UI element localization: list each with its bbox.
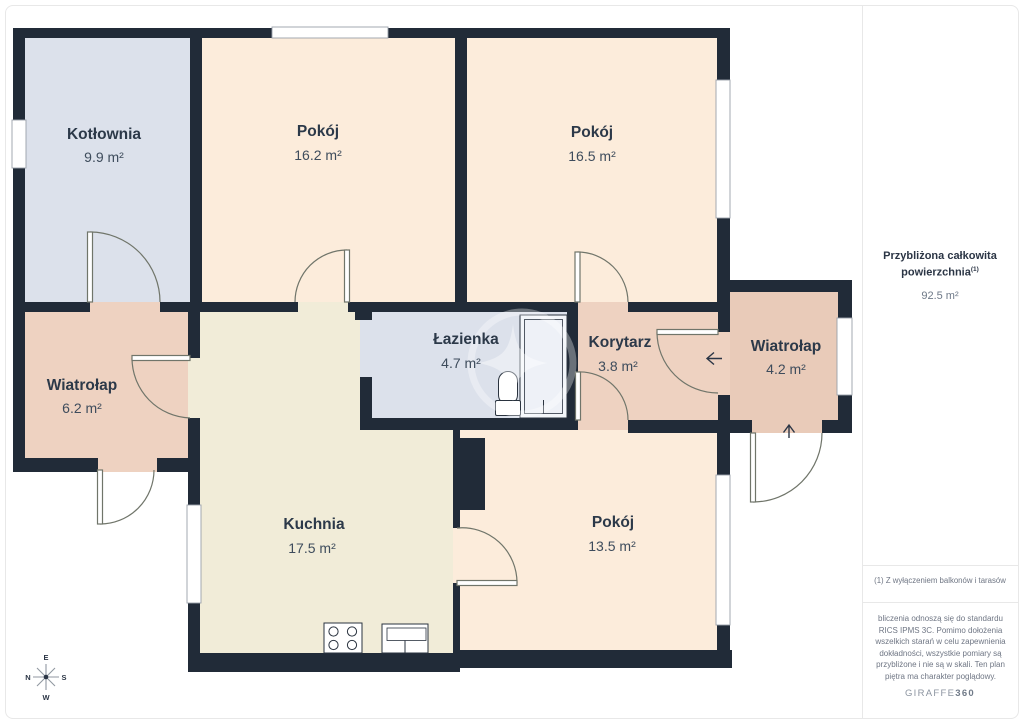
wall-pokoj1-pokoj2 <box>455 38 467 302</box>
room-area-wiatrolap2: 4.2 m² <box>766 361 806 377</box>
wall-lazienka-nw-stub <box>355 302 372 320</box>
room-area-lazienka: 4.7 m² <box>441 355 481 371</box>
total-area-title-line1: Przybliżona całkowita <box>883 250 997 262</box>
room-area-pokoj2: 16.5 m² <box>568 148 616 164</box>
door-leaf <box>345 250 350 302</box>
room-kotlownia-floor <box>25 38 190 302</box>
wall-wiatrolap2-east-a <box>838 280 852 318</box>
wall-wiatrolap1-south-a <box>13 458 98 472</box>
wall-wiatrolap1-south-b <box>157 458 188 472</box>
compass-rose-icon: E N S W <box>25 653 66 702</box>
threshold-wiatrolap2-exit <box>752 420 822 433</box>
wall-pokoj3-east-a <box>717 433 730 475</box>
wall-kuchnia-pokoj3-a <box>453 428 460 528</box>
window-kuchnia-west <box>187 505 201 603</box>
total-area-title-line2: powierzchnia <box>901 267 971 279</box>
door-leaf <box>575 252 580 302</box>
wall-east-upper-a <box>717 38 730 80</box>
logo-text-suffix: 360 <box>955 688 975 699</box>
disclaimer-text: bliczenia odnoszą się do standardu RICS … <box>868 613 1013 683</box>
note-divider-top <box>863 565 1018 566</box>
room-pokoj1-floor <box>202 38 455 302</box>
room-label-pokoj1: Pokój <box>297 123 339 140</box>
stove-burner <box>347 627 356 636</box>
window-wiatrolap2-east <box>837 318 852 395</box>
total-area-title: Przybliżona całkowita powierzchnia(1) <box>864 249 1016 282</box>
room-label-pokoj3: Pokój <box>592 514 634 531</box>
room-label-kuchnia: Kuchnia <box>283 516 345 533</box>
stove <box>324 623 362 653</box>
door-wiatrolap2-exit <box>751 433 823 502</box>
door-leaf <box>88 232 93 302</box>
wall-korytarz-south <box>628 420 732 433</box>
window-kotlownia-west <box>12 120 26 168</box>
threshold-wiatrolap1-exit <box>98 458 157 472</box>
door-leaf <box>98 470 103 524</box>
wall-west-lower <box>13 168 25 472</box>
wall-top-left <box>13 28 272 38</box>
window-pokoj1-north <box>272 27 388 38</box>
total-area-footnote-marker: (1) <box>971 266 979 273</box>
room-pokoj2-floor <box>467 38 717 302</box>
room-kuchnia-floor-lower <box>360 430 453 655</box>
door-leaf <box>657 330 718 335</box>
wall-mid-d <box>628 302 718 312</box>
stove-burner <box>329 627 338 636</box>
door-leaf <box>576 372 581 420</box>
room-label-pokoj2: Pokój <box>571 124 613 141</box>
window-pokoj2-east <box>716 80 730 218</box>
wall-wiatrolap2-south-a <box>732 420 752 433</box>
wall-pokoj3-pillar <box>460 438 485 510</box>
room-wiatrolap2-floor <box>730 292 838 420</box>
threshold-wiatrolap1-kuchnia <box>188 358 200 418</box>
wall-mid-c <box>348 302 578 312</box>
sink-basin <box>387 628 426 641</box>
total-area-value: 92.5 m² <box>864 290 1016 302</box>
wall-west-mid-b <box>188 418 200 505</box>
wall-wiatrolap2-north <box>718 280 852 292</box>
door-leaf <box>457 581 517 586</box>
wall-kotlownia-pokoj1 <box>190 38 202 302</box>
wall-mid-b <box>160 302 298 312</box>
room-area-pokoj1: 16.2 m² <box>294 147 342 163</box>
door-arc <box>100 470 154 524</box>
room-area-wiatrolap1: 6.2 m² <box>62 400 102 416</box>
room-label-wiatrolap2: Wiatrołap <box>751 338 821 355</box>
door-leaf <box>751 433 756 502</box>
sink <box>382 624 428 653</box>
total-area-block: Przybliżona całkowita powierzchnia(1) 92… <box>864 249 1016 302</box>
window-pokoj3-east <box>716 475 730 625</box>
sidebar-divider <box>862 5 863 718</box>
logo-text-main: GIRAFFE <box>905 688 955 699</box>
room-label-lazienka: Łazienka <box>433 331 499 348</box>
wall-lazienka-west-stub <box>360 377 372 425</box>
footnote-text: (1) Z wyłączeniem balkonów i tarasów <box>864 576 1016 585</box>
wall-top-right <box>388 28 730 38</box>
compass-label-top: E <box>43 653 48 662</box>
door-arc <box>753 433 822 502</box>
wall-pokoj3-south <box>453 650 732 668</box>
stove-burner <box>347 640 356 649</box>
compass-center-dot <box>44 675 49 680</box>
wall-korytarz-wiatrolap2-a <box>718 292 730 332</box>
threshold-pokoj1 <box>298 302 348 312</box>
wall-kuchnia-pokoj3-b <box>453 583 460 653</box>
door-wiatrolap1-exit <box>98 470 155 524</box>
threshold-kuchnia-pokoj3 <box>453 528 460 583</box>
compass-label-right: S <box>61 673 66 682</box>
room-kuchnia-floor <box>200 312 360 655</box>
compass-label-left: N <box>25 673 30 682</box>
stove-body <box>324 623 362 653</box>
threshold-pokoj2-korytarz <box>577 302 628 312</box>
wall-kuchnia-south <box>188 653 460 672</box>
room-label-korytarz: Korytarz <box>589 334 652 351</box>
room-label-wiatrolap1: Wiatrołap <box>47 377 117 394</box>
threshold-lazienka <box>360 320 372 377</box>
door-leaf <box>132 356 190 361</box>
note-divider-bottom <box>863 602 1018 603</box>
wall-wiatrolap2-south-b <box>822 420 852 433</box>
wall-mid-a <box>13 302 90 312</box>
compass-label-bottom: W <box>42 693 50 702</box>
wall-pokoj3-east-b <box>717 625 730 650</box>
room-area-pokoj3: 13.5 m² <box>588 538 636 554</box>
wall-lazienka-south <box>360 418 578 430</box>
floorplan-drawing: Kotłownia 9.9 m² Pokój 16.2 m² Pokój 16.… <box>0 0 862 724</box>
room-area-korytarz: 3.8 m² <box>598 358 638 374</box>
wall-west-upper <box>13 38 25 120</box>
giraffe360-logo: GIRAFFE360 <box>864 688 1016 699</box>
room-label-kotlownia: Kotłownia <box>67 126 141 143</box>
wall-west-mid-a <box>188 302 200 358</box>
threshold-kotlownia <box>90 302 160 312</box>
stove-burner <box>329 640 338 649</box>
room-area-kotlownia: 9.9 m² <box>84 149 124 165</box>
threshold-korytarz-wiatrolap2 <box>718 332 730 395</box>
floorplan-page: Kotłownia 9.9 m² Pokój 16.2 m² Pokój 16.… <box>0 0 1024 724</box>
room-area-kuchnia: 17.5 m² <box>288 540 336 556</box>
